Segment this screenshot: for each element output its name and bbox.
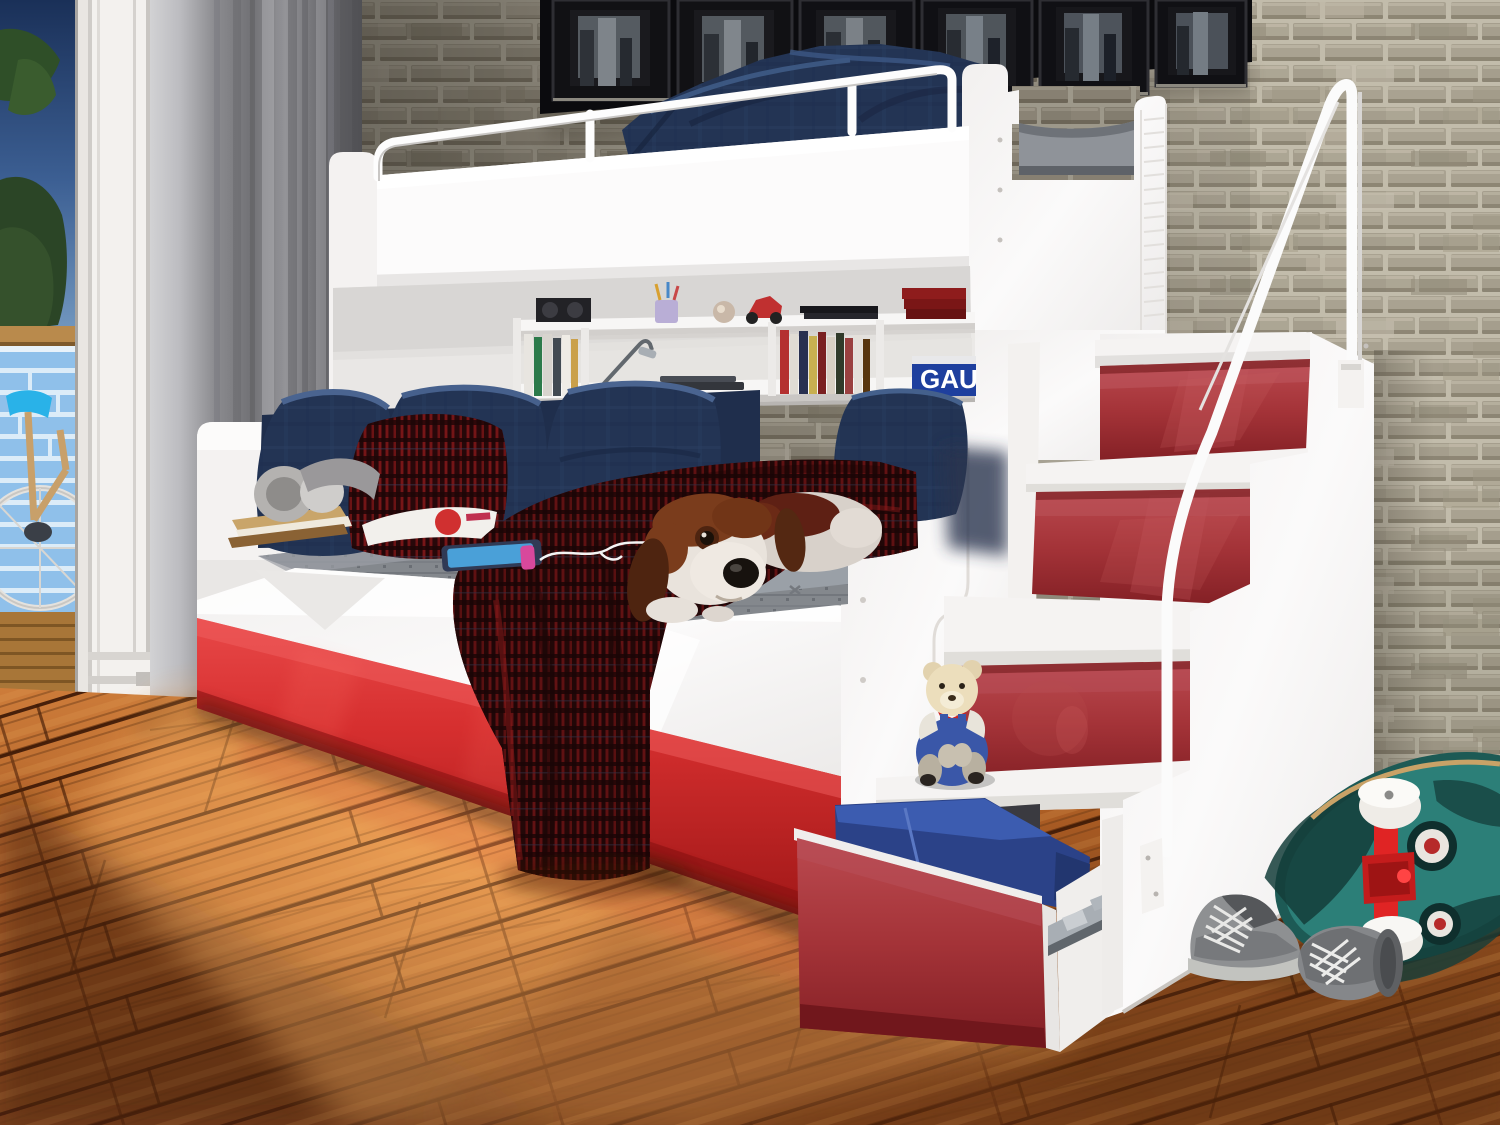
svg-text:GAU: GAU xyxy=(920,364,978,394)
